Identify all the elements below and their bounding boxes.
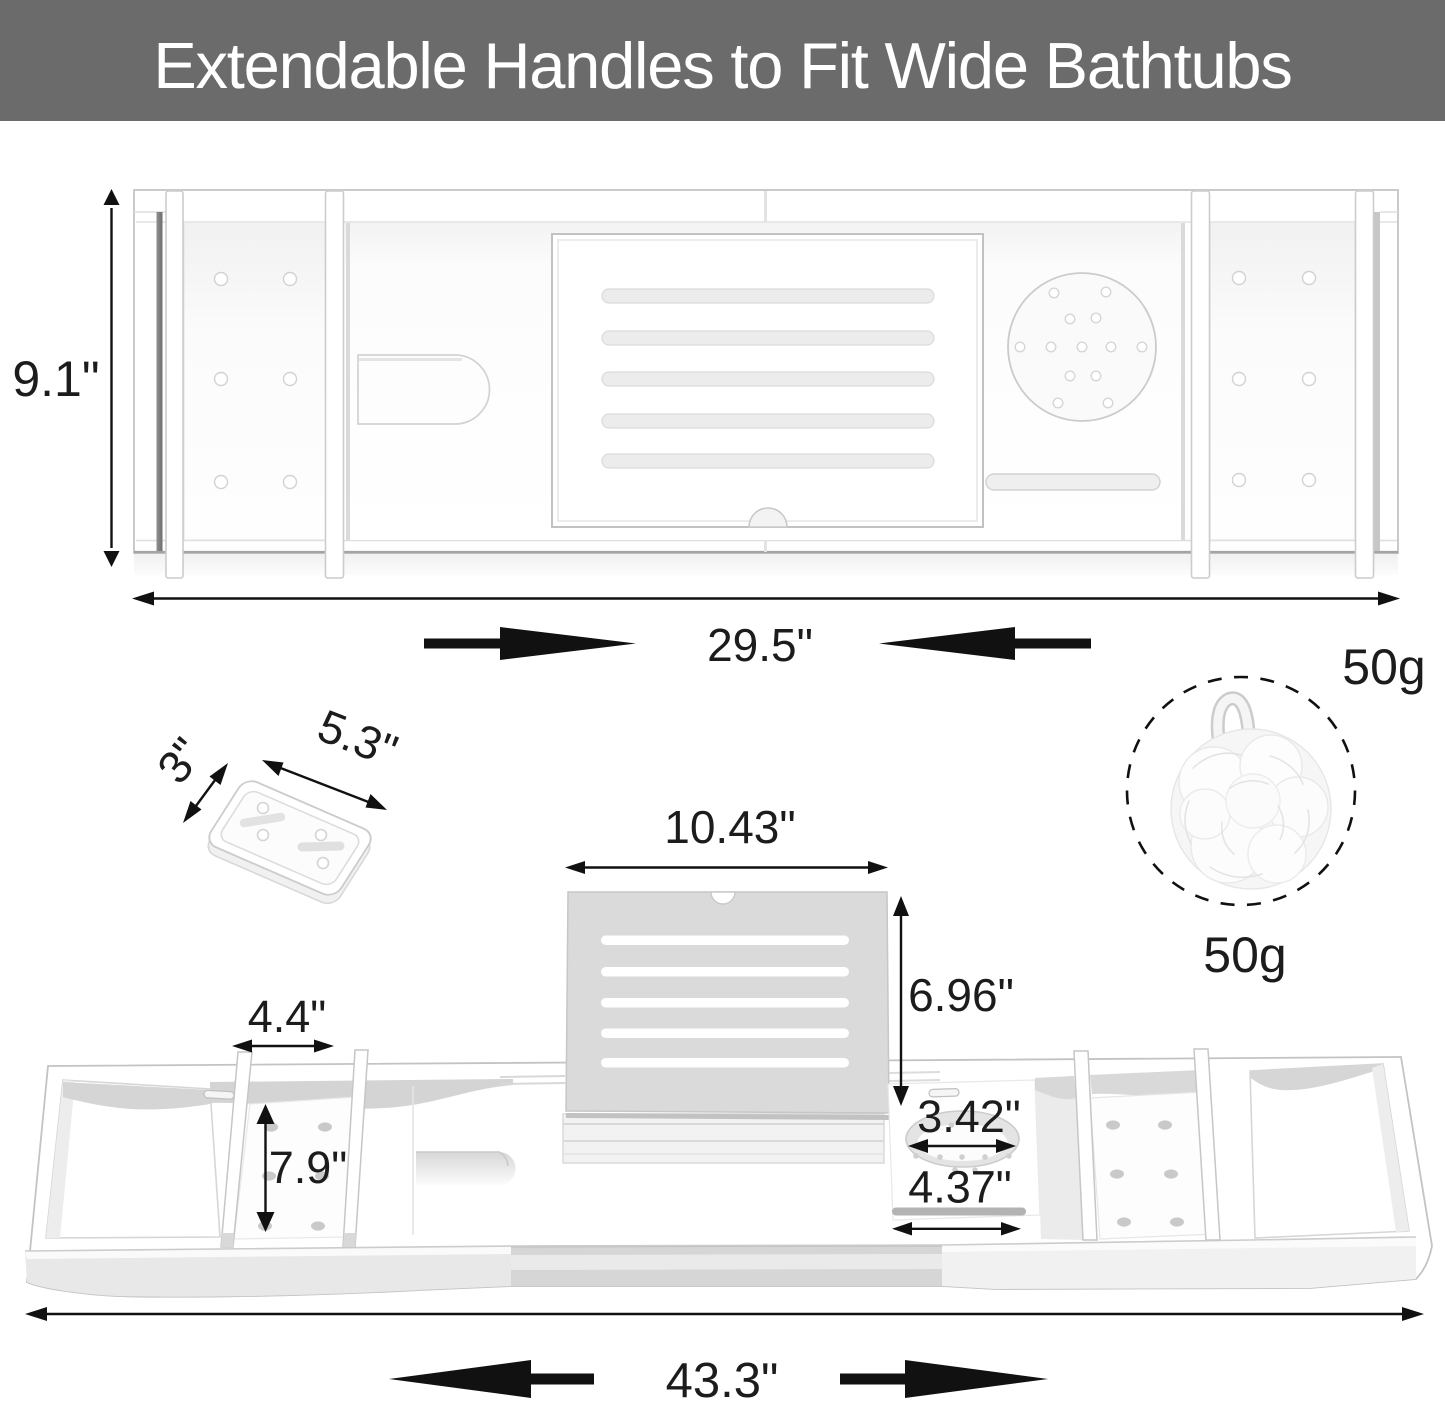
svg-text:4.37": 4.37" (908, 1162, 1012, 1213)
svg-text:5.3": 5.3" (311, 699, 405, 777)
svg-text:29.5": 29.5" (707, 619, 813, 671)
svg-text:6.96": 6.96" (908, 969, 1014, 1021)
svg-text:50g: 50g (1203, 927, 1286, 983)
svg-text:3.42": 3.42" (917, 1091, 1021, 1142)
svg-text:43.3": 43.3" (666, 1354, 779, 1401)
svg-text:4.4": 4.4" (248, 991, 327, 1042)
svg-text:7.9": 7.9" (269, 1142, 348, 1193)
svg-text:9.1": 9.1" (12, 351, 99, 407)
svg-text:10.43": 10.43" (664, 801, 795, 853)
svg-text:3": 3" (147, 728, 214, 793)
svg-text:50g: 50g (1342, 639, 1425, 695)
